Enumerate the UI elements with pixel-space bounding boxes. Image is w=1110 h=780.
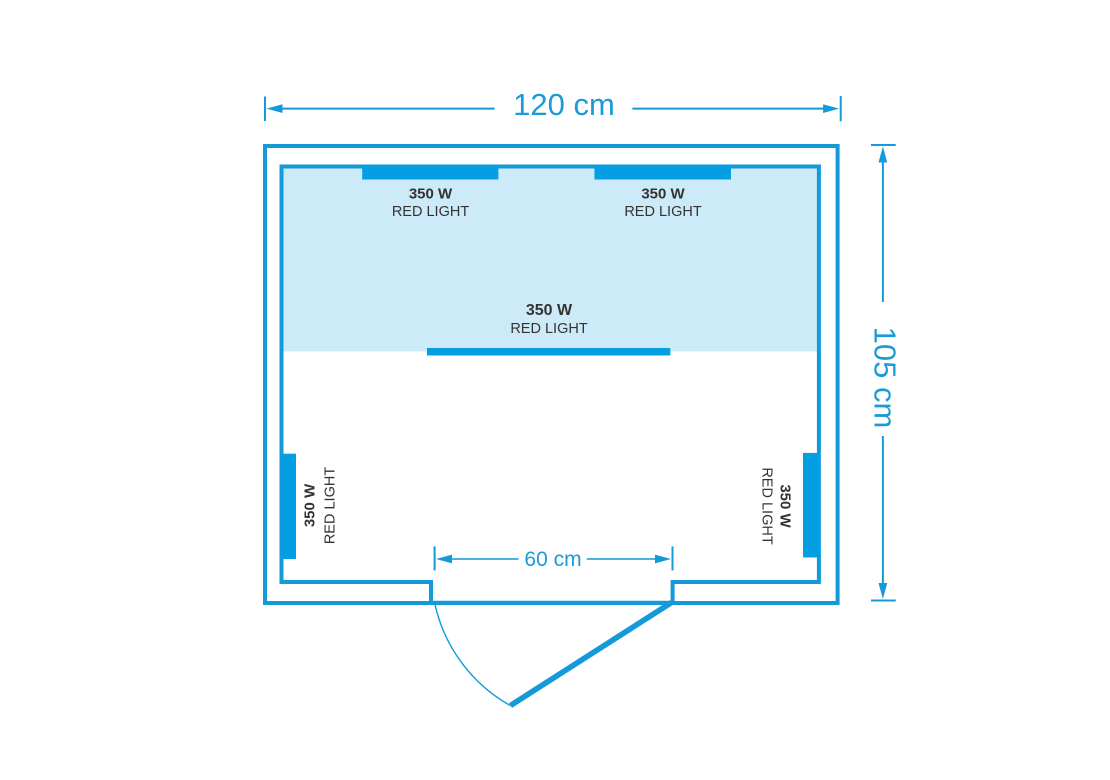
svg-text:350 W: 350 W [301, 483, 318, 527]
svg-text:120 cm: 120 cm [513, 87, 615, 122]
svg-text:RED LIGHT: RED LIGHT [322, 467, 338, 544]
svg-text:60 cm: 60 cm [524, 548, 581, 571]
svg-text:350 W: 350 W [526, 302, 573, 319]
svg-text:RED LIGHT: RED LIGHT [392, 204, 469, 220]
svg-text:105 cm: 105 cm [868, 327, 903, 429]
svg-text:RED LIGHT: RED LIGHT [759, 467, 775, 544]
svg-text:350 W: 350 W [641, 186, 685, 203]
svg-text:RED LIGHT: RED LIGHT [624, 204, 701, 220]
svg-text:RED LIGHT: RED LIGHT [510, 321, 587, 337]
svg-text:350 W: 350 W [777, 484, 794, 528]
svg-text:350 W: 350 W [409, 186, 453, 203]
